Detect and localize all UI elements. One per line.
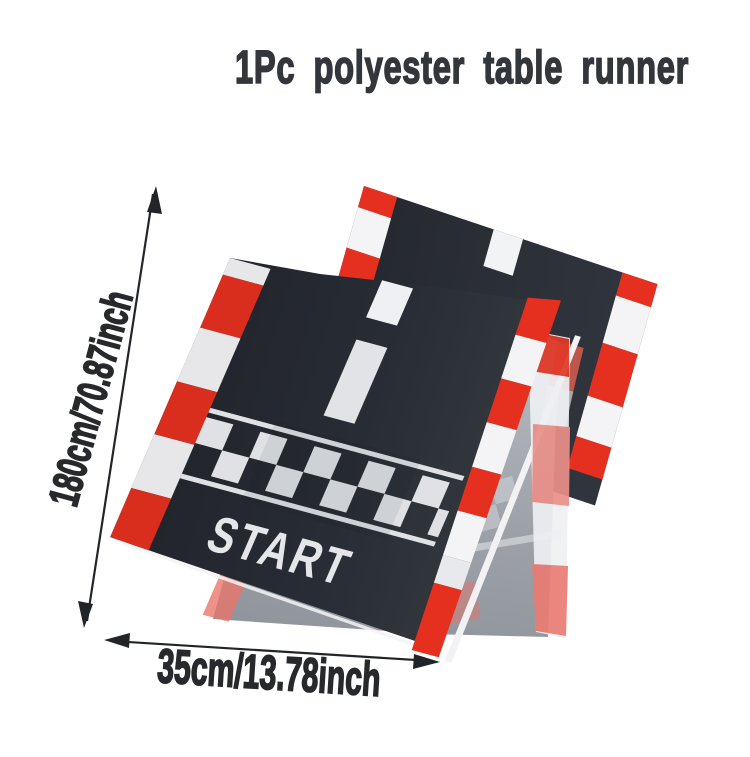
svg-text:1Pc polyester table runner: 1Pc polyester table runner — [235, 43, 689, 94]
